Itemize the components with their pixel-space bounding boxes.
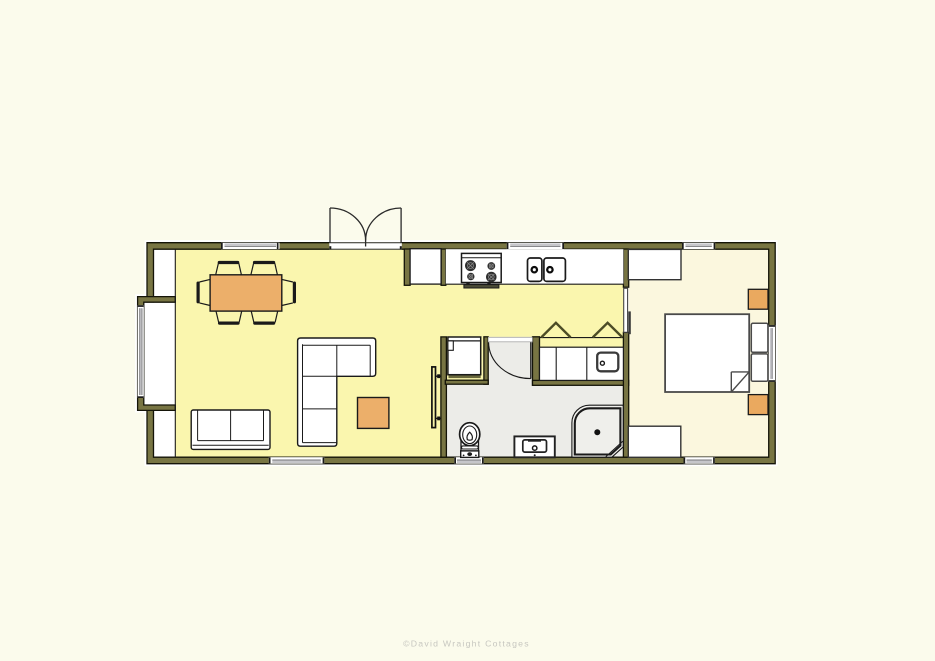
svg-text:©David Wraight Cottages: ©David Wraight Cottages — [403, 639, 530, 649]
